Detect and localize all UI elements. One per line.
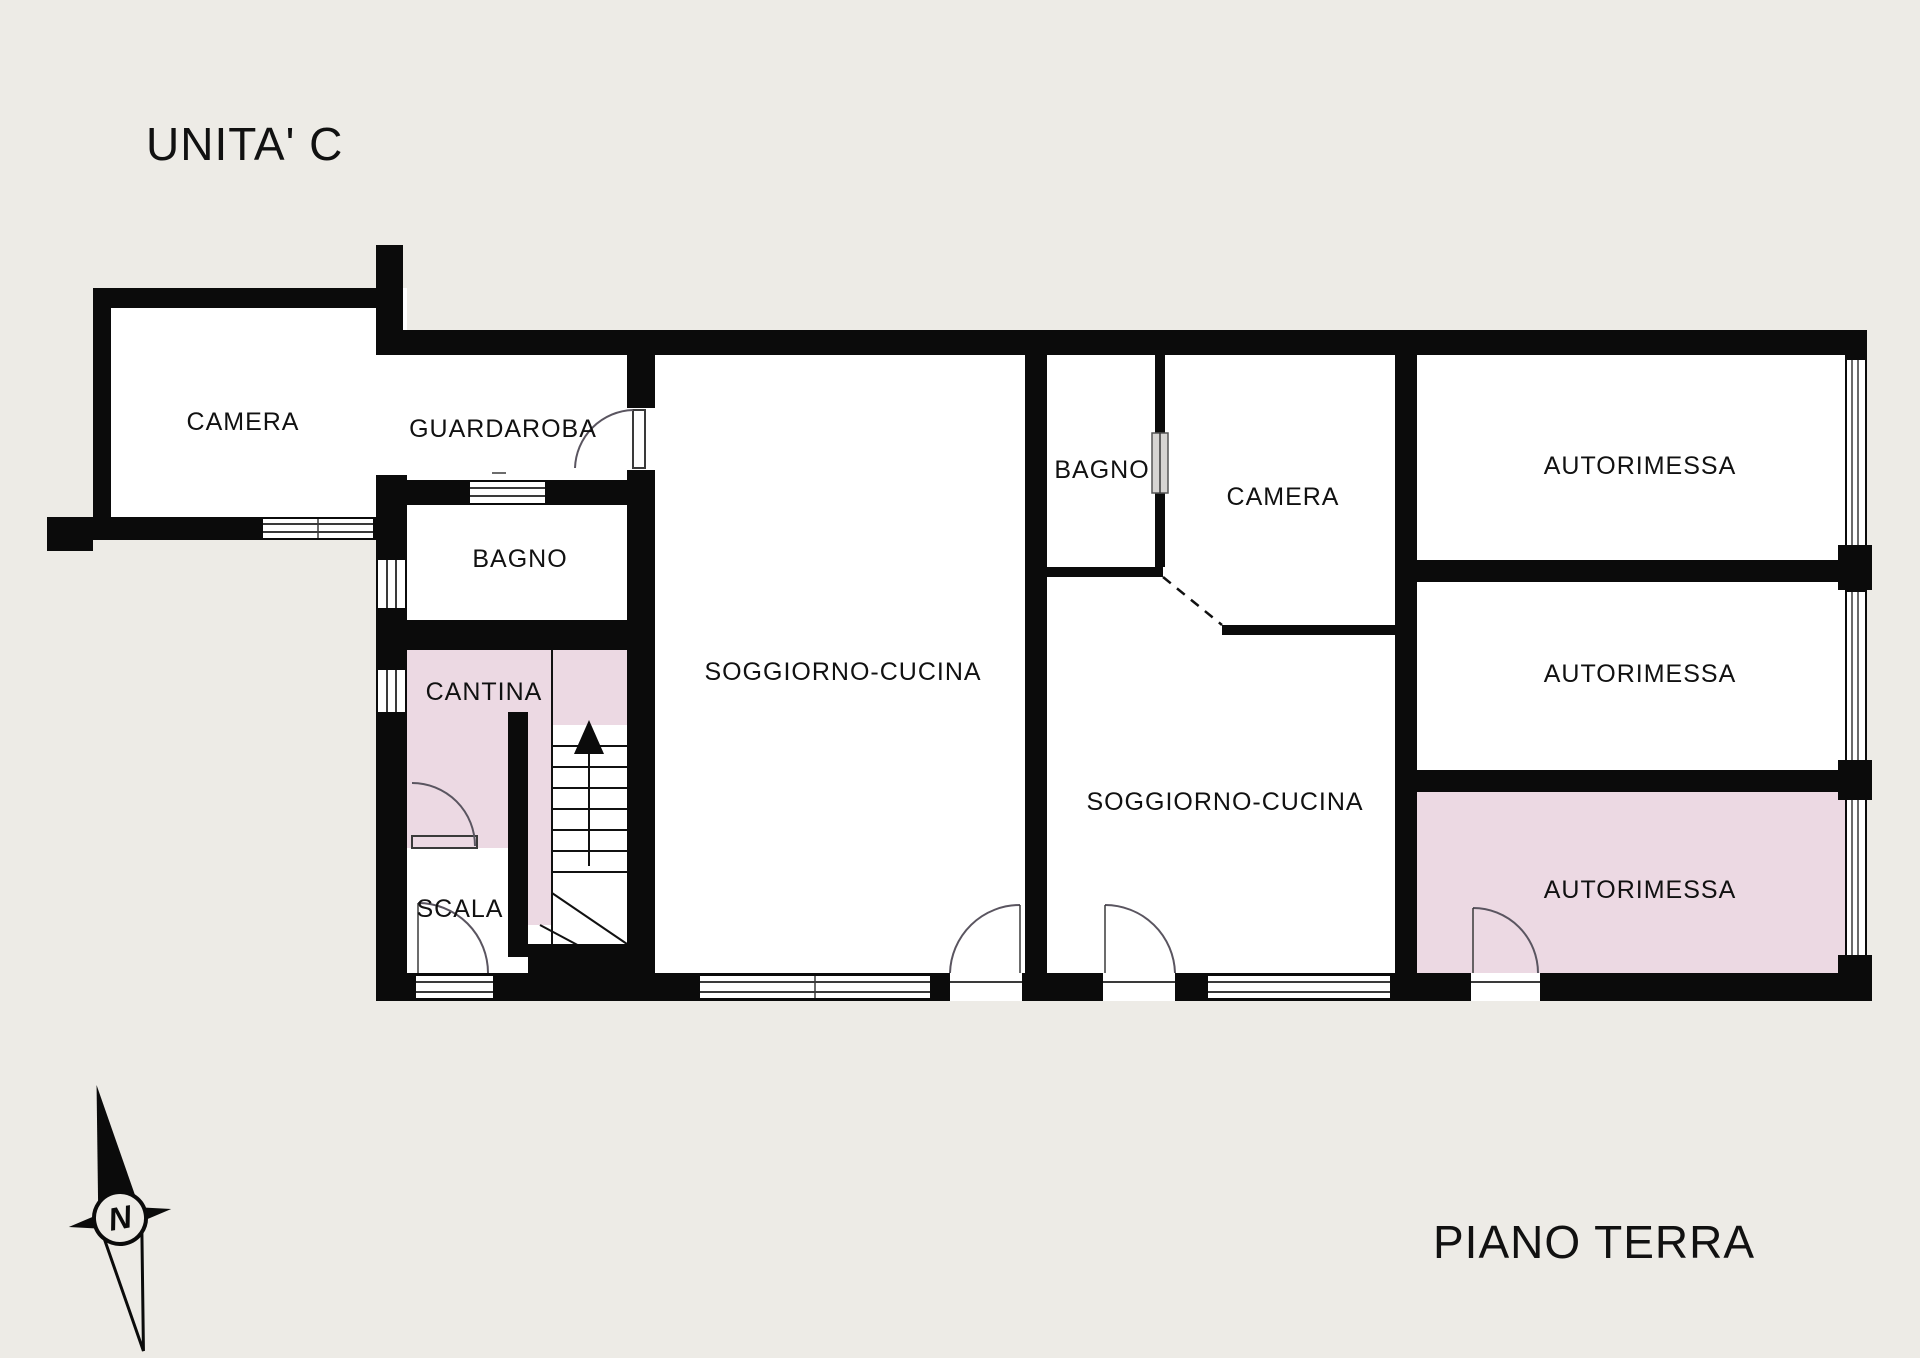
floor-plan-page: UNITA' C xyxy=(0,0,1920,1358)
window xyxy=(1847,360,1865,545)
door-opening xyxy=(1471,973,1540,1001)
wall-top xyxy=(376,330,1867,355)
window xyxy=(378,670,405,712)
wall xyxy=(1155,493,1165,567)
wall xyxy=(1025,330,1047,1001)
room-label-bagno2: BAGNO xyxy=(1054,456,1149,484)
door-opening xyxy=(627,408,655,470)
room-label-soggiorno1: SOGGIORNO-CUCINA xyxy=(704,658,981,686)
window xyxy=(470,482,545,503)
room-label-autorimessa3: AUTORIMESSA xyxy=(1544,876,1737,904)
wall-block xyxy=(1838,955,1872,1001)
wall-step xyxy=(47,517,93,551)
unit-title: UNITA' C xyxy=(146,118,343,170)
room-label-autorimessa2: AUTORIMESSA xyxy=(1544,660,1737,688)
wall-garage-divider xyxy=(1417,770,1845,792)
north-compass: N xyxy=(45,1076,194,1358)
room-label-camera1: CAMERA xyxy=(187,408,300,436)
window xyxy=(1847,800,1865,955)
wall xyxy=(1155,355,1165,433)
wall xyxy=(407,620,655,650)
wall xyxy=(93,288,111,540)
cantina-area-sliver xyxy=(528,725,552,925)
door-opening xyxy=(1103,973,1175,1001)
window xyxy=(416,976,493,998)
door-opening xyxy=(950,973,1022,1001)
wall xyxy=(1222,625,1417,635)
wall-block xyxy=(1838,760,1872,800)
room-label-soggiorno2: SOGGIORNO-CUCINA xyxy=(1086,788,1363,816)
room-label-bagno1: BAGNO xyxy=(472,545,567,573)
wall xyxy=(1395,330,1417,1001)
room-label-guardaroba: GUARDAROBA xyxy=(409,415,597,443)
window xyxy=(1208,976,1390,998)
wall-stub xyxy=(508,712,528,957)
room-label-camera2: CAMERA xyxy=(1227,483,1340,511)
wall xyxy=(528,944,655,974)
window xyxy=(378,560,405,608)
wall xyxy=(1047,567,1163,577)
wall-left xyxy=(376,475,407,1001)
window xyxy=(1847,592,1865,760)
floor-title: PIANO TERRA xyxy=(1433,1216,1755,1268)
wall-block xyxy=(1838,545,1872,590)
cantina-area-corridor xyxy=(407,725,508,848)
room-label-cantina: CANTINA xyxy=(426,678,543,706)
wall xyxy=(95,288,403,308)
room-label-autorimessa1: AUTORIMESSA xyxy=(1544,452,1737,480)
floor-plan-drawing: UNITA' C xyxy=(0,0,1920,1358)
room-label-scala: SCALA xyxy=(417,895,504,923)
wall-garage-divider xyxy=(1417,560,1845,582)
